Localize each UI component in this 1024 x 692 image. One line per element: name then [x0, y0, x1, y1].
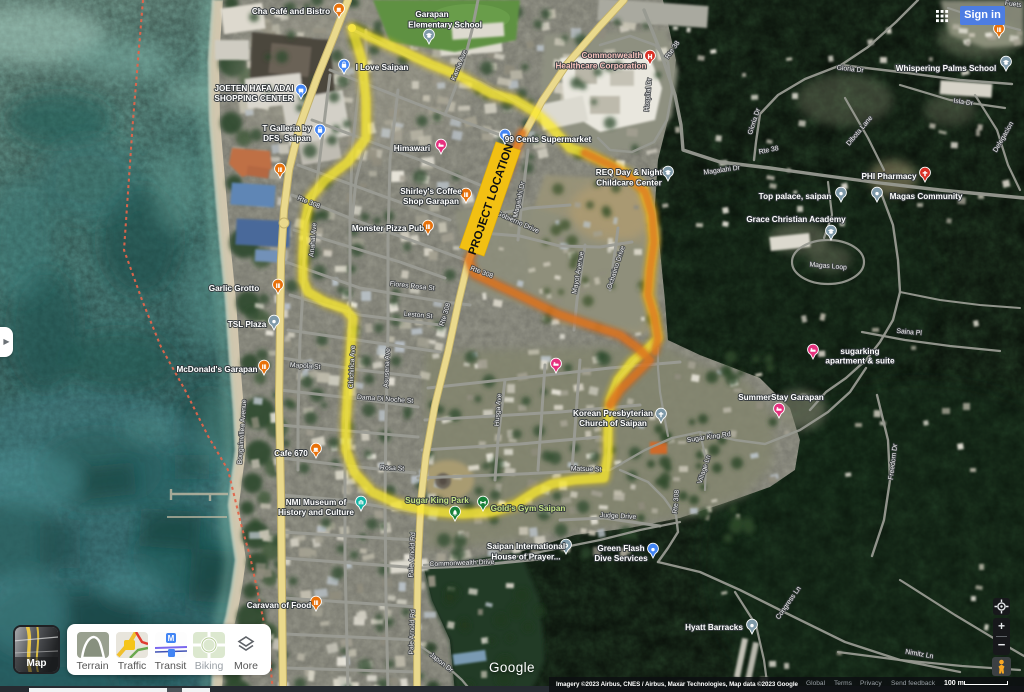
svg-text:DFS, Saipan: DFS, Saipan: [263, 134, 311, 143]
svg-text:Childcare Center: Childcare Center: [596, 178, 662, 187]
svg-text:SHOPPING CENTER: SHOPPING CENTER: [214, 94, 293, 103]
svg-text:Church of Saipan: Church of Saipan: [579, 419, 647, 428]
svg-text:Magas Community: Magas Community: [890, 192, 963, 201]
svg-text:Green Flash: Green Flash: [597, 544, 644, 553]
svg-text:M: M: [167, 634, 174, 643]
svg-text:Garlic Grotto: Garlic Grotto: [209, 284, 260, 293]
svg-text:Cafe 670: Cafe 670: [274, 449, 308, 458]
svg-text:Korean Presbyterian: Korean Presbyterian: [573, 409, 653, 418]
svg-text:Garapan: Garapan: [415, 10, 448, 19]
svg-text:TSL Plaza: TSL Plaza: [228, 320, 267, 329]
svg-text:Whispering Palms School: Whispering Palms School: [896, 64, 997, 73]
svg-text:Grace Christian Academy: Grace Christian Academy: [746, 215, 846, 224]
svg-text:Gold's Gym Saipan: Gold's Gym Saipan: [491, 504, 566, 513]
svg-text:SummerStay Garapan: SummerStay Garapan: [738, 393, 824, 402]
svg-text:JOETEN HAFA ADAI: JOETEN HAFA ADAI: [215, 84, 294, 93]
svg-text:Matsue St: Matsue St: [571, 465, 602, 473]
svg-text:T Galleria by: T Galleria by: [262, 124, 312, 133]
svg-text:McDonald's Garapan: McDonald's Garapan: [176, 365, 257, 374]
svg-text:Rosa St: Rosa St: [380, 464, 405, 472]
svg-text:Saipan International: Saipan International: [487, 542, 565, 551]
svg-text:Cha Café and Bistro: Cha Café and Bistro: [252, 7, 330, 16]
svg-text:Sugar King Park: Sugar King Park: [405, 496, 469, 505]
svg-text:Dive Services: Dive Services: [594, 554, 648, 563]
svg-text:House of Prayer...: House of Prayer...: [491, 552, 560, 561]
svg-text:sugarking: sugarking: [840, 347, 879, 356]
svg-text:History and Culture: History and Culture: [278, 508, 354, 517]
svg-text:Healthcare Corporation: Healthcare Corporation: [556, 61, 647, 70]
svg-text:Shop Garapan: Shop Garapan: [403, 197, 459, 206]
svg-text:Elementary School: Elementary School: [408, 21, 482, 30]
svg-text:Shirley's Coffee: Shirley's Coffee: [400, 187, 462, 196]
svg-text:Top palace, saipan: Top palace, saipan: [759, 192, 832, 201]
svg-text:I Love Saipan: I Love Saipan: [356, 63, 409, 72]
svg-text:Caravan of Food: Caravan of Food: [247, 601, 312, 610]
svg-text:PHI Pharmacy: PHI Pharmacy: [861, 172, 917, 181]
svg-text:apartment & suite: apartment & suite: [825, 357, 895, 366]
svg-text:NMI Museum of: NMI Museum of: [286, 498, 347, 507]
svg-text:Himawari: Himawari: [394, 144, 430, 153]
svg-text:Monster Pizza Pub: Monster Pizza Pub: [352, 224, 424, 233]
svg-text:Commonwealth: Commonwealth: [582, 51, 643, 60]
svg-text:Hyatt Barracks: Hyatt Barracks: [685, 623, 743, 632]
svg-text:99 Cents Supermarket: 99 Cents Supermarket: [505, 135, 592, 144]
svg-text:REQ Day & Night: REQ Day & Night: [596, 168, 663, 177]
